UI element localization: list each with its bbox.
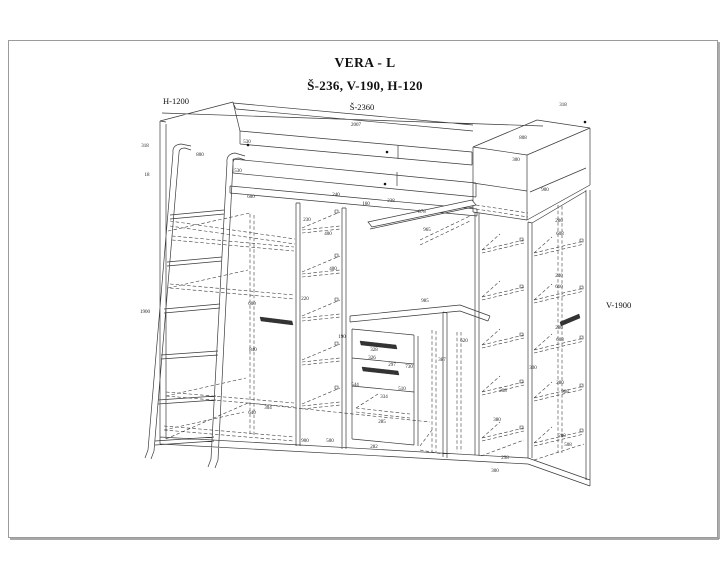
dim-annotation: 530 bbox=[234, 169, 242, 174]
dim-annotation: 380 bbox=[493, 418, 501, 423]
dim-annotation: 285 bbox=[378, 420, 386, 425]
dim-annotation: 18 bbox=[145, 173, 151, 178]
dim-annotation: 328 bbox=[370, 348, 378, 353]
drawer-handle-top bbox=[360, 341, 397, 349]
dim-annotation: 300 bbox=[491, 469, 499, 474]
cabinet-handle bbox=[560, 314, 580, 326]
dim-annotation: 608 bbox=[556, 232, 564, 237]
dim-annotation: 1900 bbox=[140, 310, 151, 315]
dim-annotation: 640 bbox=[248, 411, 256, 416]
dim-annotation: 400 bbox=[329, 267, 337, 272]
dim-annotation: 300 bbox=[512, 158, 520, 163]
dim-annotation: 387 bbox=[438, 358, 446, 363]
dim-annotation: 280 bbox=[558, 434, 566, 439]
dim-annotation: 304 bbox=[264, 406, 272, 411]
dim-annotation: 334 bbox=[380, 395, 388, 400]
dim-annotation: 600 bbox=[247, 195, 255, 200]
dim-annotation: 730 bbox=[405, 365, 413, 370]
dim-annotation: 2007 bbox=[351, 123, 362, 128]
wardrobe-handle bbox=[260, 317, 293, 325]
dim-annotation: 238 bbox=[387, 199, 395, 204]
dim-annotation: 240 bbox=[332, 193, 340, 198]
dim-annotation: 297 bbox=[388, 363, 396, 368]
dim-annotation: 508 bbox=[564, 443, 572, 448]
dim-annotation: 608 bbox=[556, 338, 564, 343]
dim-annotation: 530 bbox=[243, 140, 251, 145]
dim-annotation: 908 bbox=[561, 390, 569, 395]
dim-annotation: 878 bbox=[418, 210, 426, 215]
furniture-technical-drawing: VERA - L Š-236, V-190, H-120 H-1200 Š-23… bbox=[0, 0, 725, 578]
dim-annotation: 230 bbox=[303, 218, 311, 223]
width-dimension-label: Š-2360 bbox=[350, 102, 375, 112]
connector-dot bbox=[384, 183, 387, 186]
dim-annotation: 280 bbox=[555, 326, 563, 331]
dim-annotation: 280 bbox=[556, 381, 564, 386]
dim-annotation: 400 bbox=[324, 232, 332, 237]
dim-annotation: 326 bbox=[368, 356, 376, 361]
drawing-page: VERA - L Š-236, V-190, H-120 H-1200 Š-23… bbox=[0, 0, 725, 578]
dim-annotation: 900 bbox=[301, 439, 309, 444]
shelf-pins bbox=[335, 210, 583, 432]
drawer-handle-bottom bbox=[362, 367, 399, 375]
dim-annotation: 800 bbox=[196, 153, 204, 158]
dim-annotation: 240 bbox=[555, 274, 563, 279]
connector-dots bbox=[247, 121, 587, 186]
dim-annotation: 280 bbox=[555, 219, 563, 224]
dim-annotation: 160 bbox=[362, 202, 370, 207]
dim-annotation: 220 bbox=[301, 297, 309, 302]
dim-annotation: 190 bbox=[338, 335, 346, 340]
connector-dot bbox=[584, 121, 587, 124]
dim-annotation: 298 bbox=[501, 456, 509, 461]
page-border-shadow bbox=[10, 42, 719, 539]
dimension-annotations: 3181880053053060024016023040040019002208… bbox=[140, 103, 572, 474]
dim-annotation: 500 bbox=[326, 439, 334, 444]
dim-annotation: 208 bbox=[499, 389, 507, 394]
side-height-dimension-label: V-1900 bbox=[606, 300, 631, 310]
dim-annotation: 318 bbox=[559, 103, 567, 108]
dim-annotation: 965 bbox=[423, 228, 431, 233]
dim-annotation: 600 bbox=[248, 302, 256, 307]
drawing-title: VERA - L bbox=[335, 55, 396, 70]
dim-annotation: 840 bbox=[249, 348, 257, 353]
connector-dot bbox=[386, 151, 389, 154]
hidden-lines bbox=[164, 205, 584, 460]
dim-annotation: 620 bbox=[460, 339, 468, 344]
height-dimension-label: H-1200 bbox=[163, 96, 189, 106]
dim-annotation: 300 bbox=[529, 366, 537, 371]
dim-annotation: 610 bbox=[555, 285, 563, 290]
dim-annotation: 900 bbox=[541, 188, 549, 193]
dim-annotation: 808 bbox=[519, 136, 527, 141]
dim-annotation: 282 bbox=[370, 445, 378, 450]
dim-annotation: 544 bbox=[351, 383, 359, 388]
drawing-subtitle: Š-236, V-190, H-120 bbox=[307, 78, 423, 93]
dim-annotation: 510 bbox=[398, 387, 406, 392]
dim-annotation: 985 bbox=[421, 299, 429, 304]
dim-annotation: 318 bbox=[141, 144, 149, 149]
